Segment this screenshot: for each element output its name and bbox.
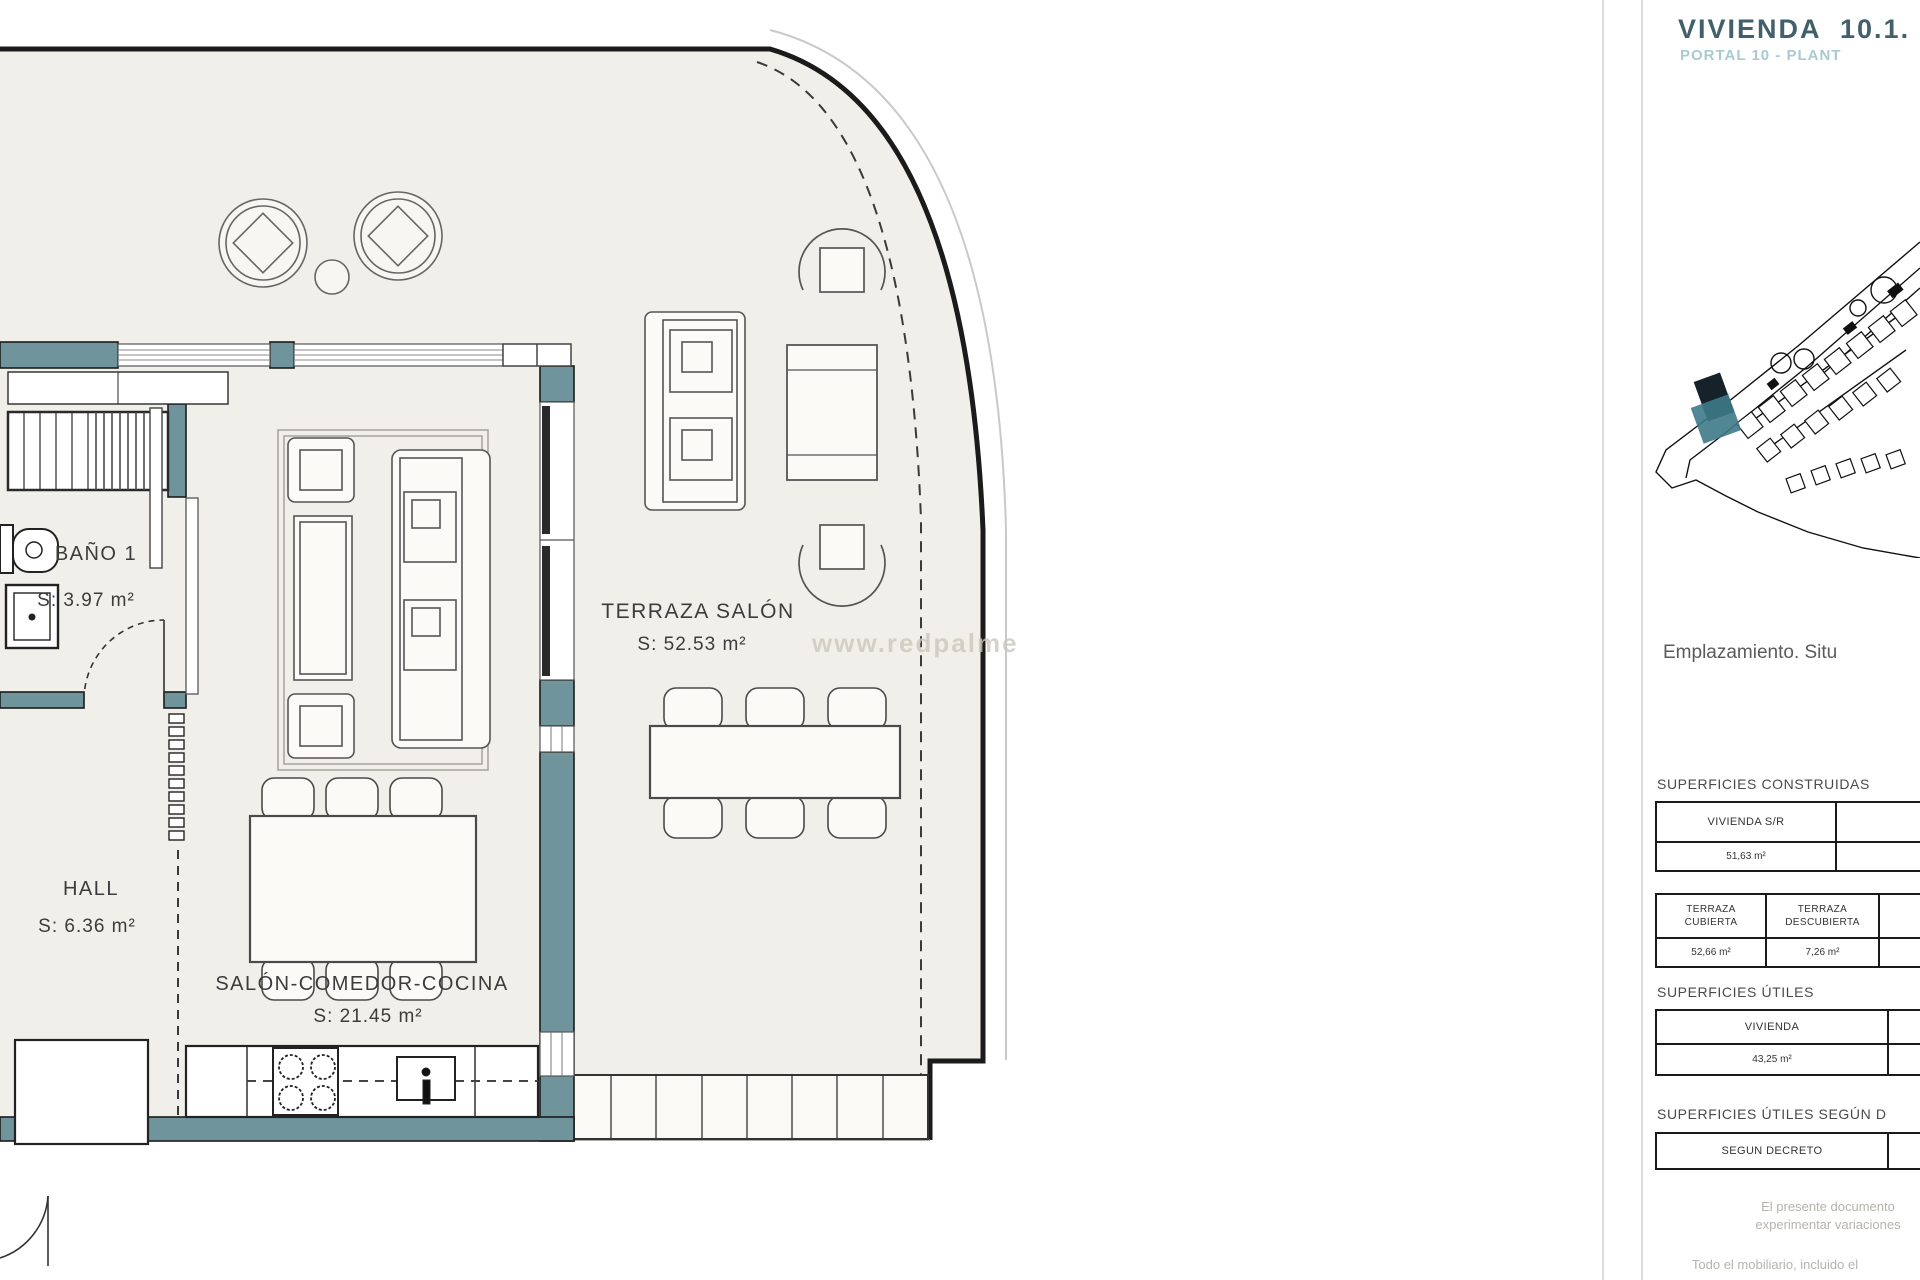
kitchen-counter [186, 1046, 538, 1117]
utiles-table: VIVIENDA 43,25 m² [1655, 1009, 1920, 1076]
floor-plan-drawing: BAÑO 1 S: 3.97 m² HALL S: 6.36 m² SALÓN-… [0, 0, 1602, 1280]
construidas-table-2: TERRAZA CUBIERTA TERRAZA DESCUBIERTA 52,… [1655, 893, 1920, 968]
disclaimer-line: El presente documento [1683, 1198, 1920, 1216]
table-header-cell [1878, 895, 1920, 937]
entrance-door-arc [0, 1196, 48, 1266]
side-table-round [315, 260, 349, 294]
armchair [288, 694, 354, 758]
utility-box [15, 1040, 148, 1144]
room-label-terraza: TERRAZA SALÓN [601, 600, 794, 623]
decreto-table: SEGUN DECRETO [1655, 1132, 1920, 1170]
table-header-cell: TERRAZA DESCUBIERTA [1765, 895, 1878, 937]
coffee-table [294, 516, 352, 680]
armchair [288, 438, 354, 502]
terrace-sofa [645, 312, 745, 510]
window-top [118, 344, 503, 366]
info-panel: VIVIENDA 10.1. PORTAL 10 - PLANT [1655, 0, 1920, 1280]
disclaimer-note: El presente documento experimentar varia… [1683, 1198, 1920, 1234]
site-unit-highlight [1691, 394, 1742, 443]
watermark: www.redpalme [811, 628, 1019, 658]
table-value-cell: 7,26 m² [1765, 939, 1878, 966]
room-label-salon: SALÓN-COMEDOR-COCINA [215, 972, 508, 995]
table-header-cell [1887, 1134, 1920, 1168]
toilet-icon [0, 525, 58, 573]
table-header-cell: SEGUN DECRETO [1657, 1134, 1887, 1168]
site-location-plan [1648, 228, 1920, 558]
table-header-cell: TERRAZA CUBIERTA [1657, 895, 1765, 937]
table-header-cell [1887, 1011, 1920, 1043]
table-value-cell: 51,63 m² [1657, 843, 1835, 870]
salon-door-leaf [186, 498, 198, 694]
sheet-subtitle: PORTAL 10 - PLANT [1680, 47, 1841, 64]
round-lounge-chair [354, 192, 442, 280]
panel-border-line [1641, 0, 1643, 1280]
construidas-table-1: VIVIENDA S/R 51,63 m² [1655, 801, 1920, 872]
room-label-hall: HALL [63, 878, 119, 900]
disclaimer-line: Todo el mobiliario, incluido el [1655, 1256, 1895, 1274]
table-value-cell [1835, 843, 1920, 870]
emplazamiento-caption: Emplazamiento. Situ [1663, 642, 1837, 664]
room-area-hall: S: 6.36 m² [38, 916, 136, 937]
sofa [392, 450, 490, 748]
room-area-terraza: S: 52.53 m² [637, 634, 746, 655]
table-header-cell: VIVIENDA [1657, 1011, 1887, 1043]
utiles-decreto-label: SUPERFICIES ÚTILES SEGÚN D [1657, 1106, 1887, 1122]
floor-plan-sheet: BAÑO 1 S: 3.97 m² HALL S: 6.36 m² SALÓN-… [0, 0, 1920, 1280]
round-lounge-chair [219, 199, 307, 287]
table-value-cell: 52,66 m² [1657, 939, 1765, 966]
terrace-sideboard [503, 344, 571, 366]
sheet-title: VIVIENDA 10.1. [1678, 14, 1910, 45]
dining-table-indoor [250, 778, 476, 1000]
disclaimer-line: experimentar variaciones [1683, 1216, 1920, 1234]
pergola-slats [566, 1075, 928, 1139]
table-value-cell [1887, 1045, 1920, 1074]
table-header-cell [1835, 803, 1920, 841]
room-label-bano: BAÑO 1 [55, 541, 137, 565]
table-header-cell: VIVIENDA S/R [1657, 803, 1835, 841]
room-area-bano: S: 3.97 m² [37, 590, 135, 611]
construidas-label: SUPERFICIES CONSTRUIDAS [1657, 776, 1870, 792]
room-area-salon: S: 21.45 m² [313, 1006, 422, 1027]
utiles-label: SUPERFICIES ÚTILES [1657, 984, 1814, 1000]
sheet-border-line [1602, 0, 1604, 1280]
furniture-note: Todo el mobiliario, incluido el [1655, 1256, 1895, 1274]
table-value-cell [1878, 939, 1920, 966]
terrace-dining-set [650, 688, 900, 838]
table-value-cell: 43,25 m² [1657, 1045, 1887, 1074]
terrace-square-table [787, 345, 877, 480]
